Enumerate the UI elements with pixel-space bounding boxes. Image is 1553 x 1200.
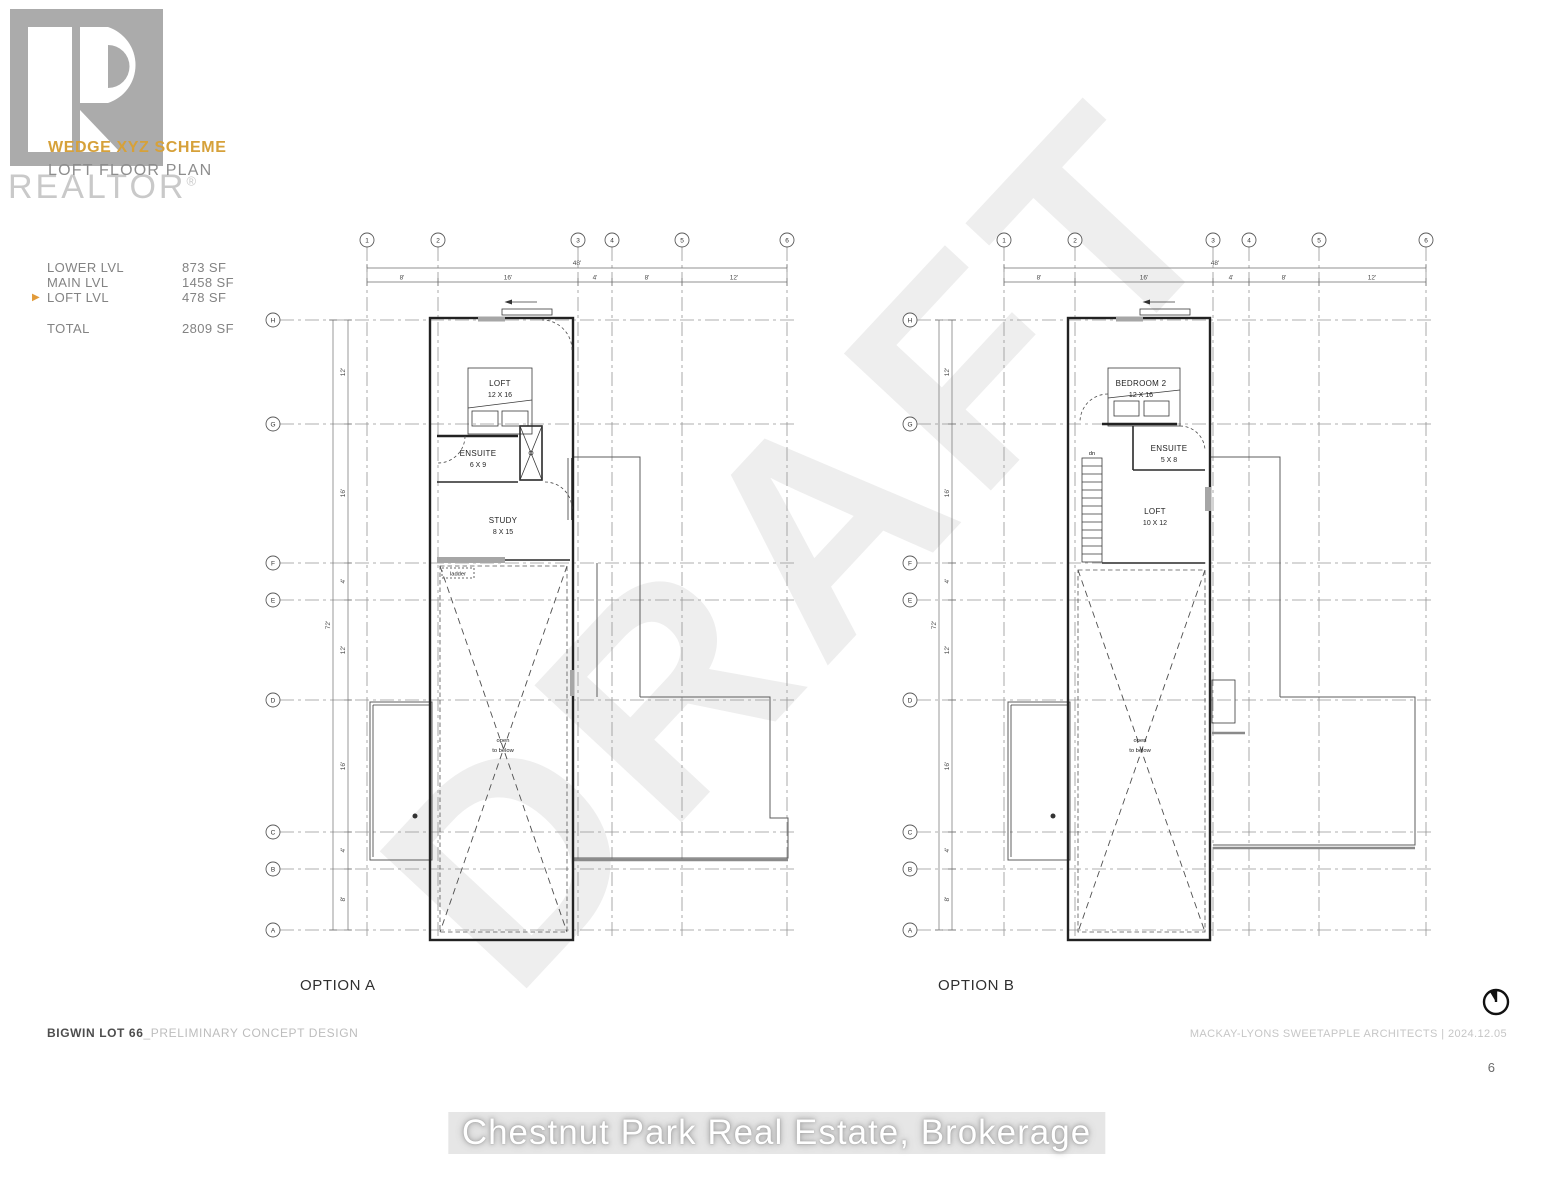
svg-text:5: 5 — [680, 237, 684, 244]
svg-text:16': 16' — [1140, 275, 1148, 282]
svg-text:4: 4 — [610, 237, 614, 244]
table-row: MAIN LVL 1458 SF — [47, 275, 234, 290]
window — [1205, 487, 1211, 511]
svg-text:4': 4' — [340, 848, 347, 853]
entry-door — [1116, 317, 1143, 322]
svg-text:D: D — [271, 697, 276, 704]
svg-text:B: B — [271, 866, 275, 873]
svg-text:B: B — [908, 866, 912, 873]
svg-text:3: 3 — [1211, 237, 1215, 244]
svg-text:48': 48' — [1211, 260, 1219, 267]
svg-text:16': 16' — [340, 489, 347, 497]
svg-text:C: C — [271, 829, 276, 836]
svg-text:4': 4' — [944, 579, 951, 584]
svg-text:BEDROOM 2: BEDROOM 2 — [1116, 379, 1167, 388]
project-name: BIGWIN LOT 66 — [47, 1026, 143, 1040]
svg-text:open: open — [497, 738, 510, 744]
svg-text:12': 12' — [944, 646, 951, 654]
deck-outline-left — [370, 702, 432, 860]
svg-text:3: 3 — [576, 237, 580, 244]
page-number: 6 — [1488, 1060, 1495, 1075]
level-label: LOFT LVL — [47, 290, 182, 305]
area-summary-table: LOWER LVL 873 SF MAIN LVL 1458 SF ▶ LOFT… — [47, 260, 234, 336]
deck-outline-left — [1008, 702, 1070, 860]
bedroom2-room: BEDROOM 2 12 X 16 — [1080, 368, 1180, 426]
svg-text:12': 12' — [944, 368, 951, 376]
svg-text:12 X 16: 12 X 16 — [488, 392, 512, 399]
study-room: STUDY 8 X 15 — [437, 516, 570, 563]
svg-text:72': 72' — [931, 621, 938, 629]
open-to-below: open to below — [1078, 570, 1205, 932]
svg-text:5 X 8: 5 X 8 — [1161, 457, 1177, 464]
door-swing — [1080, 394, 1108, 422]
svg-text:1: 1 — [1002, 237, 1006, 244]
svg-text:H: H — [908, 317, 913, 324]
ladder-strip — [437, 557, 505, 563]
grid-row-bubbles: H G F E D C B A — [903, 313, 917, 937]
svg-text:8': 8' — [645, 275, 650, 282]
svg-text:ENSUITE: ENSUITE — [460, 449, 497, 458]
floor-plan-sheet: DRAFT WEDGE XYZ SCHEME LOFT FLOOR PLAN R… — [0, 0, 1553, 1200]
svg-text:8': 8' — [340, 897, 347, 902]
svg-text:D: D — [908, 697, 913, 704]
svg-text:16': 16' — [340, 762, 347, 770]
level-area: 478 SF — [182, 290, 226, 305]
svg-text:10 X 12: 10 X 12 — [1143, 520, 1167, 527]
svg-text:12': 12' — [730, 275, 738, 282]
svg-text:16': 16' — [944, 489, 951, 497]
level-label: MAIN LVL — [47, 275, 182, 290]
grid-column-bubbles: 1 2 3 4 5 6 — [360, 233, 794, 247]
svg-text:12': 12' — [340, 368, 347, 376]
svg-text:4': 4' — [1229, 275, 1234, 282]
horizontal-dimensions: 48' 8' 16' 4' 8' 12' — [367, 260, 787, 286]
svg-text:F: F — [908, 560, 912, 567]
total-area: 2809 SF — [182, 321, 234, 336]
table-row-active: ▶ LOFT LVL 478 SF — [47, 290, 234, 305]
svg-text:E: E — [271, 597, 276, 604]
entry-door — [478, 317, 505, 322]
open-to-below: ladder open to below — [440, 566, 567, 932]
project-title: BIGWIN LOT 66_PRELIMINARY CONCEPT DESIGN — [47, 1026, 358, 1040]
grid-row-lines — [917, 320, 1433, 930]
door-swing — [542, 320, 572, 350]
svg-text:ENSUITE: ENSUITE — [1151, 444, 1188, 453]
svg-text:12': 12' — [1368, 275, 1376, 282]
svg-text:G: G — [270, 421, 275, 428]
svg-text:72': 72' — [325, 621, 332, 629]
level-label: LOWER LVL — [47, 260, 182, 275]
floor-plan-option-b: 1 2 3 4 5 6 H G F E D C B A 48' 8' 16' 4… — [888, 230, 1448, 990]
roof-outline-right — [1210, 457, 1415, 848]
svg-text:12 X 16: 12 X 16 — [1129, 392, 1153, 399]
window — [568, 458, 572, 520]
pillow — [1144, 401, 1169, 416]
slide-arrow-icon — [1143, 300, 1151, 305]
architect-credit: MACKAY-LYONS SWEETAPPLE ARCHITECTS | 202… — [1190, 1028, 1507, 1040]
svg-text:4: 4 — [1247, 237, 1251, 244]
svg-text:1: 1 — [365, 237, 369, 244]
loft-room: LOFT 12 X 16 — [468, 320, 572, 434]
svg-text:open: open — [1134, 738, 1147, 744]
svg-text:16': 16' — [944, 762, 951, 770]
svg-text:to below: to below — [1129, 748, 1151, 754]
stairs: dn — [1082, 451, 1102, 562]
vertical-dimensions: 72' 12' 16' 4' 12' 16' 4' 8' — [325, 320, 352, 930]
grid-row-bubbles: H G F E D C B A — [266, 313, 280, 937]
total-label: TOTAL — [47, 321, 182, 336]
option-a-label: OPTION A — [300, 977, 376, 994]
north-arrow-icon — [1480, 986, 1512, 1018]
slider-track — [502, 309, 552, 315]
svg-text:8': 8' — [944, 897, 951, 902]
svg-text:dn: dn — [1089, 451, 1095, 457]
svg-text:LOFT: LOFT — [489, 379, 511, 388]
svg-text:to below: to below — [492, 748, 514, 754]
svg-text:12': 12' — [340, 646, 347, 654]
svg-text:4': 4' — [593, 275, 598, 282]
project-phase: _PRELIMINARY CONCEPT DESIGN — [143, 1026, 358, 1040]
table-row: LOWER LVL 873 SF — [47, 260, 234, 275]
svg-text:LOFT: LOFT — [1144, 507, 1166, 516]
scheme-title: WEDGE XYZ SCHEME — [48, 139, 227, 157]
option-b-label: OPTION B — [938, 977, 1014, 994]
svg-text:16': 16' — [504, 275, 512, 282]
svg-text:ladder: ladder — [450, 572, 466, 578]
floor-plan-option-a: 1 2 3 4 5 6 H G F E D C B A 48' 8' 16' 4… — [250, 230, 810, 990]
svg-text:6: 6 — [785, 237, 789, 244]
slider-track — [1140, 309, 1190, 315]
svg-text:48': 48' — [573, 260, 581, 267]
svg-text:C: C — [908, 829, 913, 836]
loft-room: LOFT 10 X 12 — [1102, 507, 1205, 563]
table-row-total: TOTAL 2809 SF — [47, 321, 234, 336]
svg-text:4': 4' — [340, 579, 347, 584]
grid-row-lines — [280, 320, 795, 930]
svg-text:E: E — [908, 597, 913, 604]
vertical-dimensions: 72' 12' 16' 4' 12' 16' 4' 8' — [931, 320, 956, 930]
ensuite-room: ENSUITE 6 X 9 — [437, 426, 572, 509]
svg-text:6 X 9: 6 X 9 — [470, 462, 486, 469]
svg-text:H: H — [271, 317, 276, 324]
level-area: 1458 SF — [182, 275, 234, 290]
svg-text:STUDY: STUDY — [489, 516, 518, 525]
svg-text:G: G — [907, 421, 912, 428]
svg-text:2: 2 — [1073, 237, 1077, 244]
ensuite-room: ENSUITE 5 X 8 — [1133, 426, 1205, 470]
svg-text:2: 2 — [436, 237, 440, 244]
svg-text:A: A — [271, 927, 276, 934]
horizontal-dimensions: 48' 8' 16' 4' 8' 12' — [1004, 260, 1426, 286]
active-row-arrow-icon: ▶ — [32, 290, 40, 305]
svg-text:8': 8' — [1282, 275, 1287, 282]
brokerage-watermark: Chestnut Park Real Estate, Brokerage — [448, 1112, 1105, 1154]
roof-outline-right — [573, 457, 788, 860]
level-area: 873 SF — [182, 260, 226, 275]
svg-text:8': 8' — [400, 275, 405, 282]
grid-column-bubbles: 1 2 3 4 5 6 — [997, 233, 1433, 247]
pillow — [1114, 401, 1139, 416]
svg-text:F: F — [271, 560, 275, 567]
svg-text:A: A — [908, 927, 913, 934]
svg-text:5: 5 — [1317, 237, 1321, 244]
sheet-subtitle: LOFT FLOOR PLAN — [48, 162, 212, 180]
svg-text:6: 6 — [1424, 237, 1428, 244]
svg-text:8 X 15: 8 X 15 — [493, 529, 513, 536]
svg-text:4': 4' — [944, 848, 951, 853]
svg-text:8': 8' — [1037, 275, 1042, 282]
slide-arrow-icon — [505, 300, 513, 305]
